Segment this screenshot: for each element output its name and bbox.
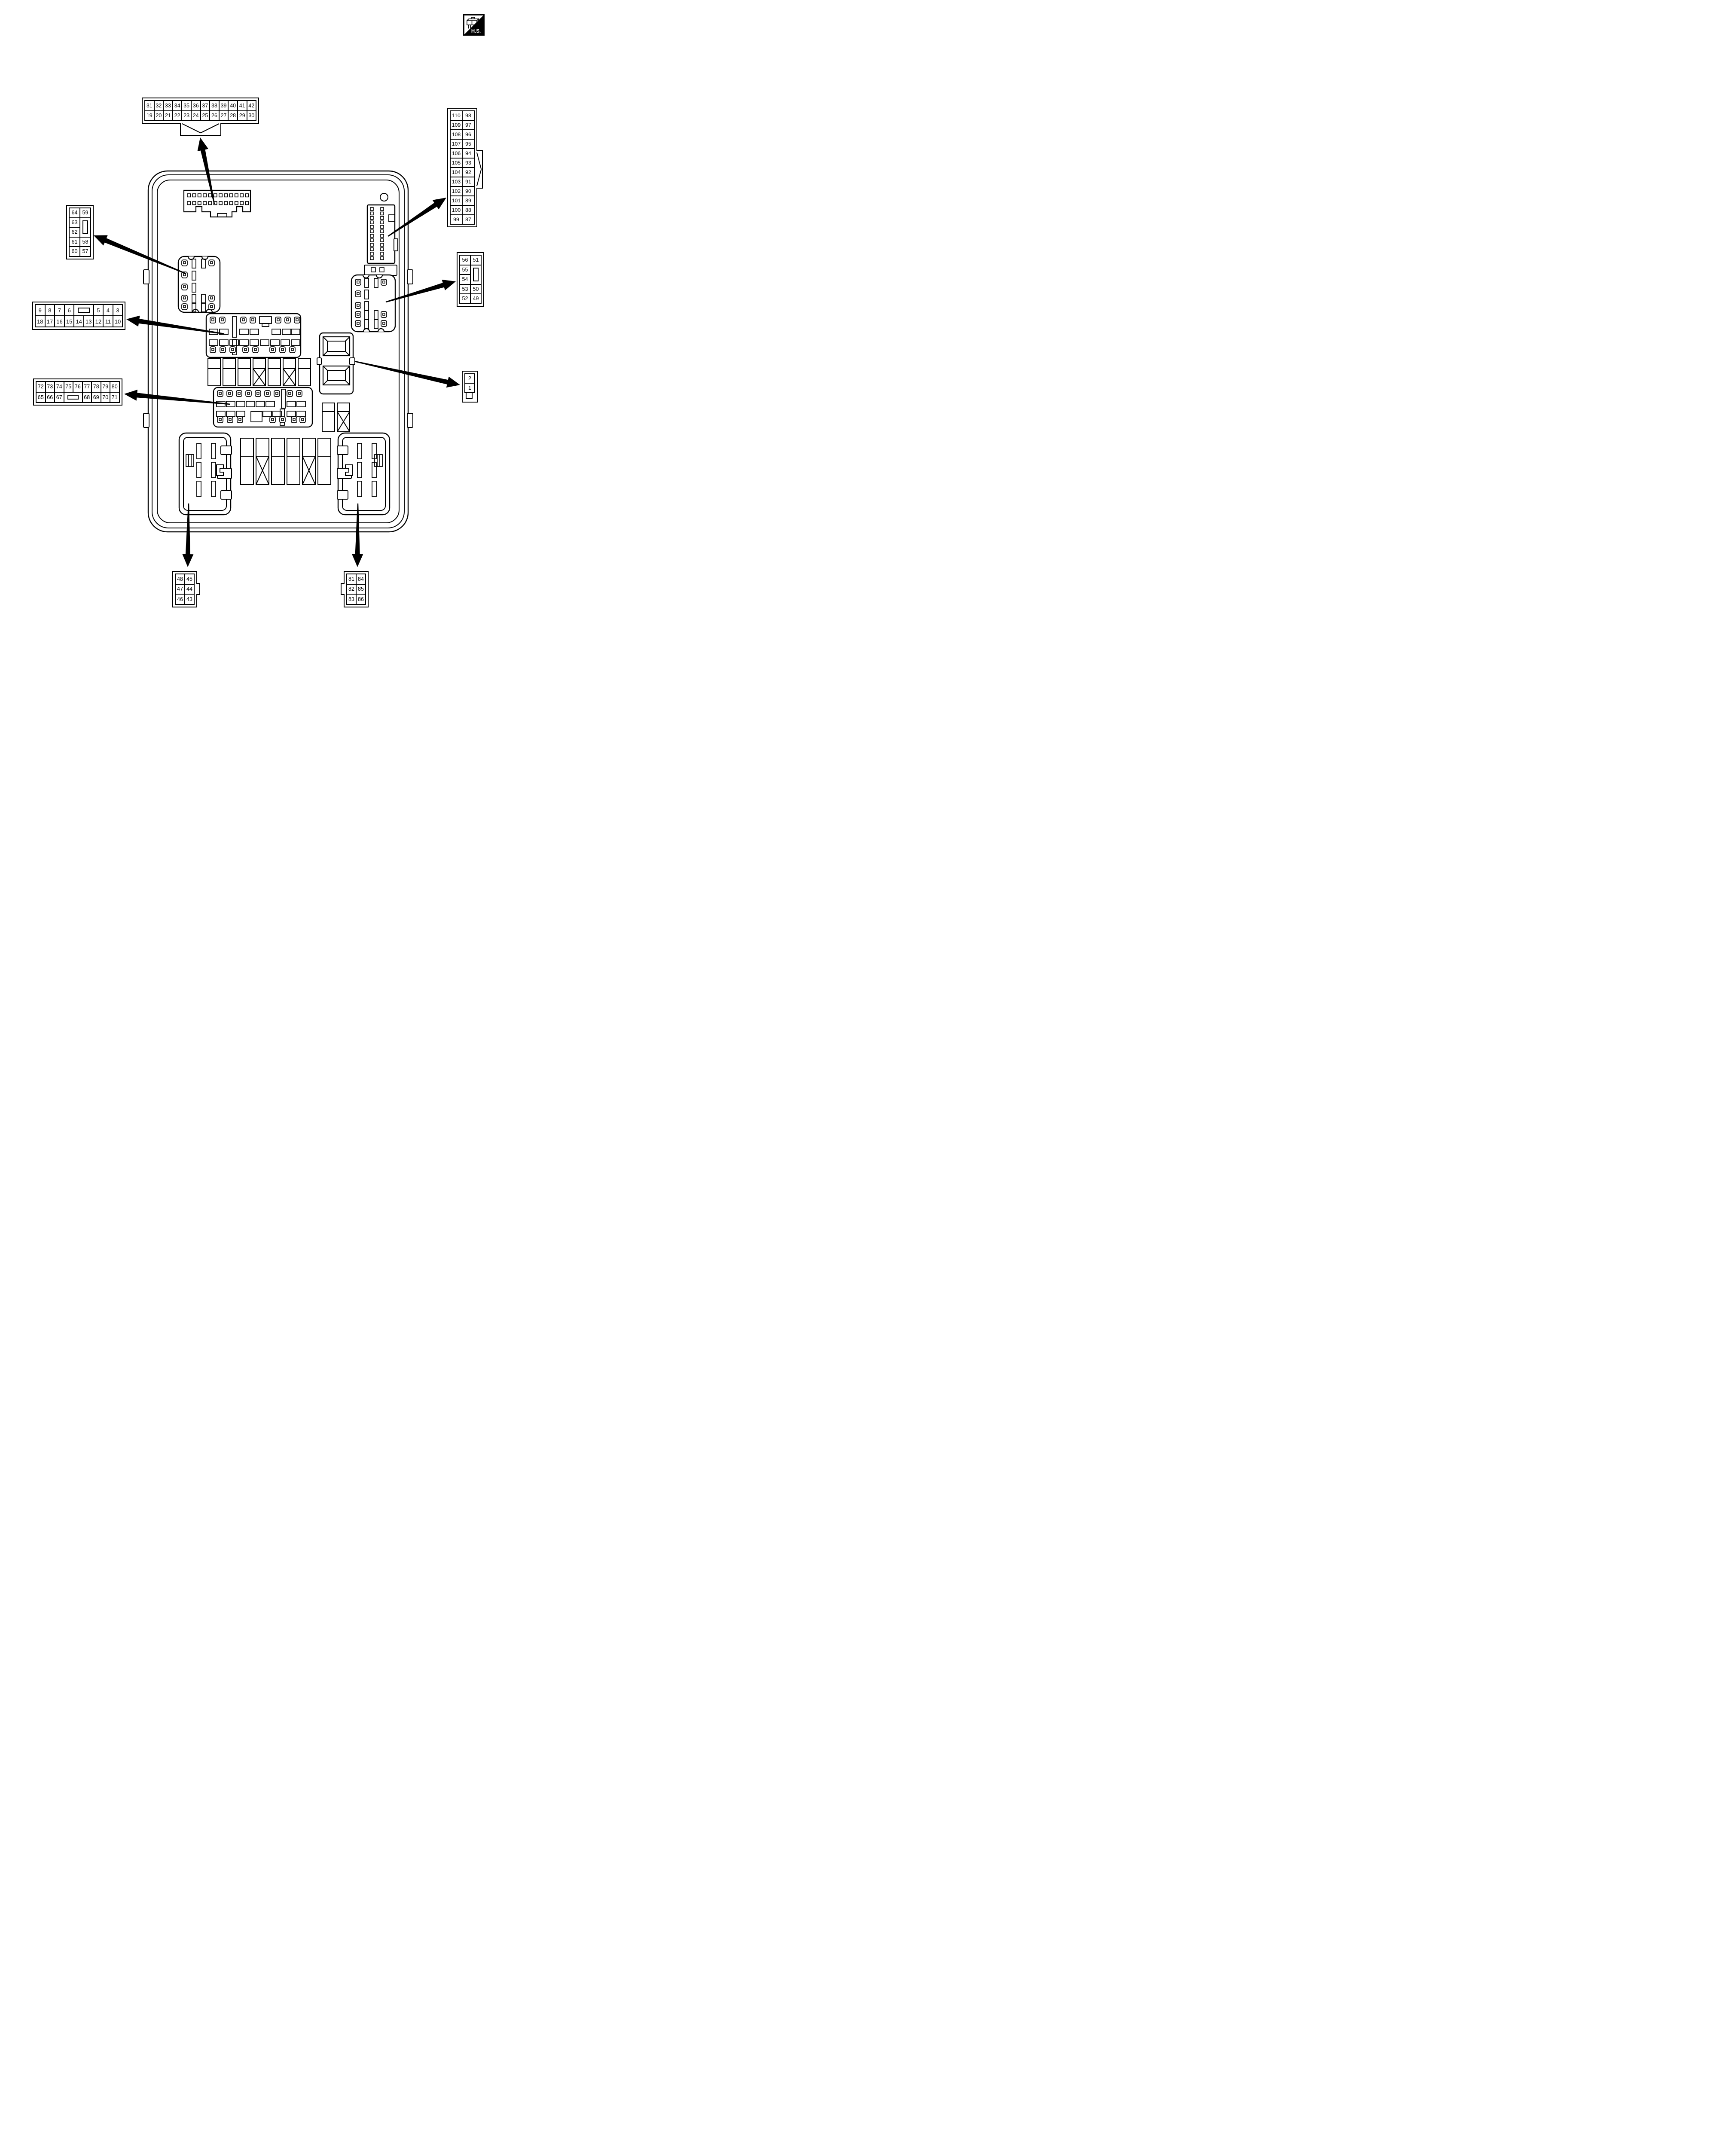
pin-cell: 56 <box>460 256 471 265</box>
pin-table-1-2: 21 <box>462 371 478 403</box>
pin-cell: 29 <box>238 111 247 122</box>
pin-cell: 93 <box>463 159 475 168</box>
keyway <box>473 268 479 282</box>
connector-bottom-right <box>337 433 390 515</box>
pin-cell: 20 <box>155 111 164 122</box>
pin-cell: 83 <box>347 595 357 605</box>
connector-key-tab <box>196 583 200 595</box>
pin-cell: 27 <box>220 111 229 122</box>
pin-cell: 8 <box>46 305 55 316</box>
pin-cell: 32 <box>155 101 164 111</box>
pin-cell: 12 <box>94 316 104 327</box>
pin-cell: 17 <box>46 316 55 327</box>
connector-key-tab <box>476 150 483 189</box>
pin-cell: 61 <box>70 238 80 247</box>
pin-cell: 72 <box>37 382 46 393</box>
pin-cell: 19 <box>145 111 155 122</box>
pin-cell: 47 <box>176 585 185 595</box>
connector-right-middle <box>351 275 395 332</box>
connector-key-tab <box>180 123 221 136</box>
pin-cell: 57 <box>80 247 91 257</box>
pin-cell: 13 <box>84 316 94 327</box>
pin-cell: 10 <box>113 316 123 327</box>
pin-table-3-18: 9876543181716151413121110 <box>32 302 125 330</box>
pin-cell: 44 <box>185 585 195 595</box>
pin-cell: 80 <box>110 382 120 393</box>
pin-cell: 102 <box>451 187 463 196</box>
pin-cell: 64 <box>70 208 80 218</box>
pin-cell: 109 <box>451 121 463 130</box>
pin-cell: 23 <box>182 111 192 122</box>
pin-cell: 48 <box>176 574 185 585</box>
pin-cell: 66 <box>46 393 55 403</box>
pin-cell: 65 <box>37 393 46 403</box>
pin-cell: 95 <box>463 140 475 149</box>
pin-cell: 43 <box>185 595 195 605</box>
keyway <box>82 220 88 235</box>
pin-cell: 41 <box>238 101 247 111</box>
keyway-cell <box>64 393 83 403</box>
pin-cell: 9 <box>36 305 46 316</box>
pin-cell: 2 <box>465 374 475 384</box>
pin-cell: 94 <box>463 149 475 159</box>
pin-cell: 54 <box>460 275 471 285</box>
pin-cell: 91 <box>463 177 475 187</box>
pin-cell: 25 <box>201 111 211 122</box>
pin-cell: 84 <box>357 574 366 585</box>
pin-cell: 15 <box>65 316 75 327</box>
pin-cell: 45 <box>185 574 195 585</box>
pin-cell: 42 <box>247 101 257 111</box>
keyway <box>78 308 90 313</box>
keyway <box>67 395 79 400</box>
pin-cell: 21 <box>164 111 173 122</box>
pin-cell: 74 <box>55 382 64 393</box>
connector-key-tab <box>341 583 345 595</box>
pin-cell: 28 <box>229 111 238 122</box>
pin-cell: 106 <box>451 149 463 159</box>
pin-cell: 1 <box>465 384 475 393</box>
pin-cell: 30 <box>247 111 257 122</box>
pin-cell: 86 <box>357 595 366 605</box>
pin-cell: 69 <box>92 393 101 403</box>
pin-cell: 70 <box>101 393 111 403</box>
pin-cell: 26 <box>210 111 220 122</box>
pin-cell: 40 <box>229 101 238 111</box>
hs-label: H.S. <box>471 29 481 34</box>
pin-cell: 37 <box>201 101 211 111</box>
pin-cell: 3 <box>113 305 123 316</box>
pin-cell: 79 <box>101 382 111 393</box>
pin-cell: 96 <box>463 130 475 140</box>
connector-bottom-left <box>179 433 232 515</box>
pin-cell: 110 <box>451 111 463 121</box>
pin-cell: 34 <box>173 101 183 111</box>
pin-table-81-86: 818482858386 <box>344 571 369 607</box>
pin-cell: 92 <box>463 168 475 177</box>
pin-cell: 11 <box>104 316 113 327</box>
keyway-cell <box>471 265 482 285</box>
pin-cell: 89 <box>463 196 475 206</box>
pin-cell: 78 <box>92 382 101 393</box>
pin-cell: 100 <box>451 206 463 215</box>
pin-cell: 88 <box>463 206 475 215</box>
pin-cell: 90 <box>463 187 475 196</box>
hs-badge: H.S. <box>463 14 485 36</box>
pin-cell: 73 <box>46 382 55 393</box>
pin-cell: 99 <box>451 215 463 225</box>
pin-cell: 14 <box>74 316 84 327</box>
connector-center-upper <box>206 314 301 357</box>
pin-cell: 33 <box>164 101 173 111</box>
pin-cell: 60 <box>70 247 80 257</box>
pin-cell: 67 <box>55 393 64 403</box>
pin-cell: 39 <box>220 101 229 111</box>
pin-cell: 76 <box>73 382 83 393</box>
pin-cell: 71 <box>110 393 120 403</box>
pin-table-43-48: 484547444643 <box>172 571 197 607</box>
pin-cell: 7 <box>55 305 65 316</box>
pin-cell: 87 <box>463 215 475 225</box>
pin-cell: 35 <box>182 101 192 111</box>
pin-cell: 59 <box>80 208 91 218</box>
pin-cell: 103 <box>451 177 463 187</box>
pin-cell: 18 <box>36 316 46 327</box>
pin-cell: 6 <box>65 305 75 316</box>
connector-right-top <box>364 205 398 275</box>
pin-cell: 108 <box>451 130 463 140</box>
pin-cell: 81 <box>347 574 357 585</box>
pin-cell: 101 <box>451 196 463 206</box>
pin-cell: 24 <box>192 111 201 122</box>
pin-cell: 4 <box>104 305 113 316</box>
keyway <box>466 392 473 399</box>
pin-cell: 62 <box>70 228 80 238</box>
pin-cell: 58 <box>80 238 91 247</box>
pin-cell: 98 <box>463 111 475 121</box>
pin-cell: 46 <box>176 595 185 605</box>
pin-cell: 36 <box>192 101 201 111</box>
pin-table-65-80: 72737475767778798065666768697071 <box>33 378 122 406</box>
pin-cell: 55 <box>460 265 471 275</box>
keyway-cell <box>74 305 94 316</box>
pin-cell: 97 <box>463 121 475 130</box>
pin-cell: 107 <box>451 140 463 149</box>
pin-cell: 50 <box>471 285 482 295</box>
relay-block <box>317 333 355 394</box>
pin-cell: 53 <box>460 285 471 295</box>
pin-cell: 31 <box>145 101 155 111</box>
pin-cell: 22 <box>173 111 183 122</box>
connector-left-middle <box>178 256 220 312</box>
connector-center-lower <box>214 387 312 427</box>
pin-table-49-56: 5651555453505249 <box>457 252 484 307</box>
pin-cell: 105 <box>451 159 463 168</box>
pin-cell: 75 <box>64 382 74 393</box>
pin-cell: 77 <box>83 382 92 393</box>
pin-cell: 68 <box>83 393 92 403</box>
pin-cell: 51 <box>471 256 482 265</box>
pin-cell: 5 <box>94 305 104 316</box>
pin-cell: 104 <box>451 168 463 177</box>
pin-cell: 38 <box>210 101 220 111</box>
pin-cell: 16 <box>55 316 65 327</box>
pin-cell: 85 <box>357 585 366 595</box>
pin-cell: 63 <box>70 218 80 228</box>
pin-table-87-110: 1109810997108961079510694105931049210391… <box>447 108 477 227</box>
pin-cell: 82 <box>347 585 357 595</box>
keyway-cell <box>80 218 91 238</box>
pin-table-31-42-19-30: 3132333435363738394041421920212223242526… <box>142 98 259 124</box>
pin-table-57-64: 6459636261586057 <box>66 205 94 259</box>
pin-cell: 49 <box>471 294 482 304</box>
pin-cell: 52 <box>460 294 471 304</box>
